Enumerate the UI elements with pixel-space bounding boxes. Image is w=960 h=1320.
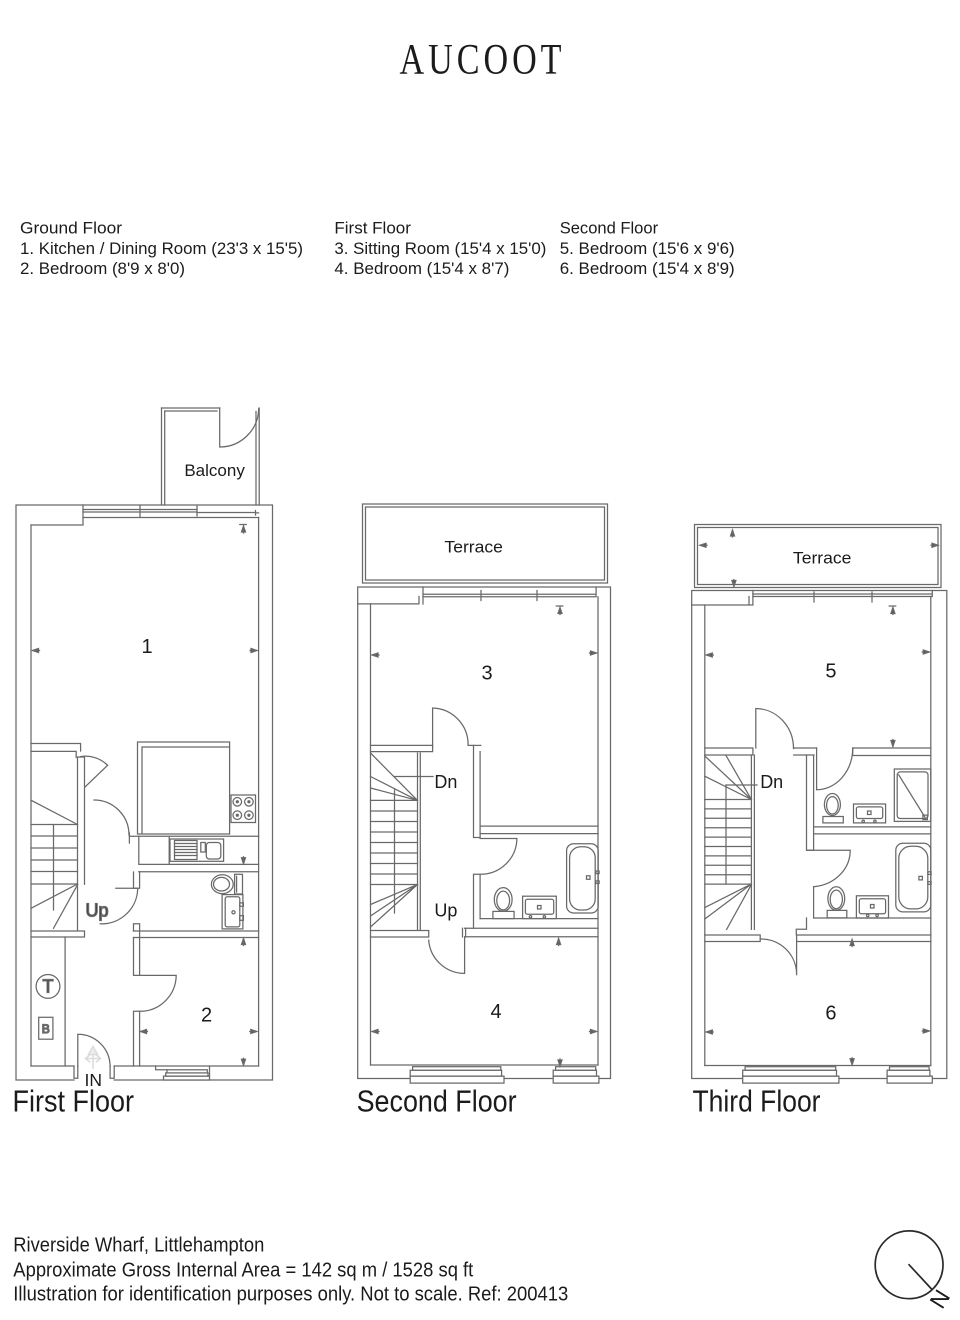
svg-text:1. Kitchen / Dining Room (23'3: 1. Kitchen / Dining Room (23'3 x 15'5)	[20, 239, 303, 258]
svg-text:4: 4	[490, 1001, 501, 1023]
svg-text:2. Bedroom (8'9 x 8'0): 2. Bedroom (8'9 x 8'0)	[20, 259, 185, 278]
svg-text:AUCOOT: AUCOOT	[400, 37, 566, 84]
svg-text:Dn: Dn	[760, 772, 783, 792]
svg-text:Approximate Gross Internal Are: Approximate Gross Internal Area = 142 sq…	[13, 1259, 473, 1281]
svg-text:Riverside Wharf, Littlehampton: Riverside Wharf, Littlehampton	[13, 1234, 264, 1256]
svg-text:T: T	[43, 977, 54, 997]
svg-text:Terrace: Terrace	[444, 537, 503, 556]
svg-text:First Floor: First Floor	[334, 219, 411, 238]
svg-text:Up: Up	[86, 901, 109, 921]
svg-text:Second Floor: Second Floor	[560, 219, 659, 238]
svg-text:5. Bedroom (15'6 x 9'6): 5. Bedroom (15'6 x 9'6)	[560, 239, 735, 258]
svg-text:First Floor: First Floor	[13, 1084, 135, 1119]
svg-text:Second Floor: Second Floor	[357, 1084, 517, 1119]
svg-text:B: B	[42, 1022, 50, 1036]
svg-text:4. Bedroom (15'4 x 8'7): 4. Bedroom (15'4 x 8'7)	[334, 259, 509, 278]
svg-text:Ground Floor: Ground Floor	[20, 219, 122, 238]
svg-text:Balcony: Balcony	[184, 461, 245, 480]
svg-text:3. Sitting Room (15'4 x 15'0): 3. Sitting Room (15'4 x 15'0)	[334, 239, 546, 258]
svg-text:6: 6	[825, 1003, 836, 1025]
svg-text:Third Floor: Third Floor	[693, 1084, 821, 1119]
svg-text:N: N	[924, 1285, 955, 1313]
svg-text:5: 5	[825, 661, 836, 683]
svg-text:Terrace: Terrace	[793, 549, 852, 568]
svg-text:2: 2	[201, 1005, 212, 1027]
svg-text:3: 3	[481, 663, 492, 685]
svg-text:1: 1	[141, 636, 152, 658]
svg-text:Up: Up	[434, 901, 457, 921]
svg-text:Dn: Dn	[434, 772, 457, 792]
svg-text:Illustration for identificatio: Illustration for identification purposes…	[13, 1283, 568, 1305]
svg-text:6. Bedroom (15'4 x 8'9): 6. Bedroom (15'4 x 8'9)	[560, 259, 735, 278]
